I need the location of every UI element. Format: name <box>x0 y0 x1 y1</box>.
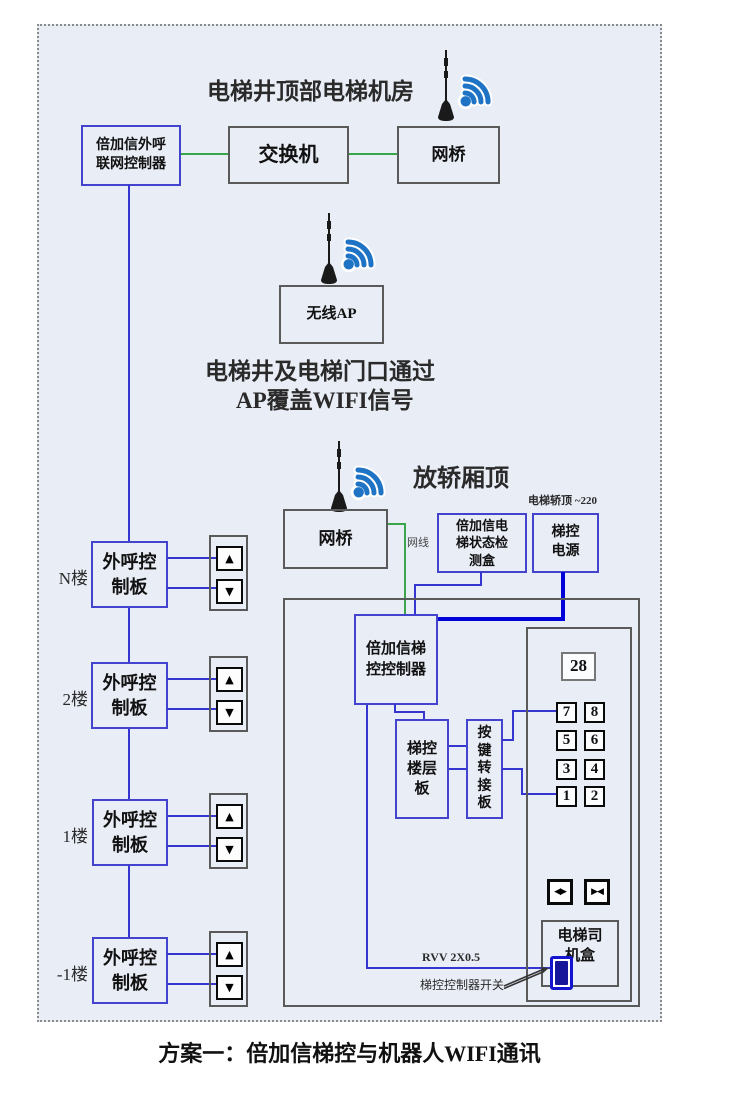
floor-button-2: 2 <box>584 786 605 807</box>
wire-switch-bridge <box>349 153 397 155</box>
down-arrow-icon: ▼ <box>225 585 233 598</box>
up-arrow-icon: ▲ <box>225 948 233 961</box>
diagram-caption: 方案一：倍加信梯控与机器人WIFI通讯 <box>37 1036 662 1068</box>
bridge-box-top: 网桥 <box>397 126 500 184</box>
machine-room-title: 电梯井顶部电梯机房 <box>207 72 414 106</box>
wire-ctrl-switch-down <box>366 705 368 969</box>
up-button: ▲ <box>216 804 243 829</box>
floor-button-6: 6 <box>584 730 605 751</box>
floor-button-7: 7 <box>556 702 577 723</box>
wifi-antenna-icon <box>314 207 380 287</box>
door-close-button: ▶◀ <box>584 879 610 905</box>
down-button: ▼ <box>216 700 243 725</box>
down-arrow-icon: ▼ <box>225 706 233 719</box>
down-arrow-icon: ▼ <box>225 981 233 994</box>
down-arrow-icon: ▼ <box>225 843 233 856</box>
up-arrow-icon: ▲ <box>225 810 233 823</box>
controller-switch-toggle <box>555 961 568 985</box>
wire-adapter-btn1-1 <box>502 768 523 770</box>
floor-board-box: 梯控 楼层 板 <box>395 719 449 819</box>
up-button: ▲ <box>216 546 243 571</box>
floor-label-minus1: -1楼 <box>22 960 88 985</box>
rvv-cable-label: RVV 2X0.5 <box>422 950 480 965</box>
controller-switch <box>550 956 573 990</box>
floor-button-5: 5 <box>556 730 577 751</box>
switch-pointer-label: 梯控控制器开关 <box>420 976 504 993</box>
diagram-page: 电梯井顶部电梯机房 倍加信外呼 联网控制器 交换机 网桥 <box>0 0 730 1096</box>
hall-call-board-1: 外呼控 制板 <box>92 799 168 866</box>
down-button: ▼ <box>216 837 243 862</box>
switch-box: 交换机 <box>228 126 349 184</box>
door-close-icon: ▶◀ <box>591 887 603 897</box>
bridge-box-roof: 网桥 <box>283 509 388 569</box>
switch-pointer-arrow <box>500 956 552 990</box>
floor-button-4: 4 <box>584 759 605 780</box>
ap-note-line2: AP覆盖WIFI信号 <box>236 381 414 415</box>
door-open-icon: ◀▶ <box>554 887 566 897</box>
elevator-power-box: 梯控 电源 <box>532 513 599 573</box>
key-adapter-box: 按 键 转 接 板 <box>466 719 503 819</box>
hall-call-board-2: 外呼控 制板 <box>91 662 168 729</box>
down-button: ▼ <box>216 579 243 604</box>
floor-label-2: 2楼 <box>30 685 88 710</box>
wire-riser-2 <box>128 607 130 663</box>
cable-label: 网线 <box>407 534 429 550</box>
floor-button-1: 1 <box>556 786 577 807</box>
status-detect-box: 倍加信电 梯状态检 测盒 <box>437 513 527 573</box>
up-arrow-icon: ▲ <box>225 552 233 565</box>
hall-call-board-n: 外呼控 制板 <box>91 541 168 608</box>
call-network-controller-box: 倍加信外呼 联网控制器 <box>81 125 181 186</box>
wire-ctrl-floorboard-3 <box>423 711 425 719</box>
wire-riser-3 <box>128 728 130 800</box>
floor-display: 28 <box>561 652 596 681</box>
door-open-button: ◀▶ <box>547 879 573 905</box>
floor-label-1: 1楼 <box>30 822 88 847</box>
floor-button-8: 8 <box>584 702 605 723</box>
up-button: ▲ <box>216 667 243 692</box>
hall-call-board-minus1: 外呼控 制板 <box>92 937 168 1004</box>
car-roof-title: 放轿厢顶 <box>413 458 509 493</box>
up-arrow-icon: ▲ <box>225 673 233 686</box>
wire-adapter-btn1-2 <box>521 768 523 795</box>
wire-board-adapter-1 <box>449 745 466 747</box>
floor-button-3: 3 <box>556 759 577 780</box>
wire-ctrl-floorboard-2 <box>394 711 425 713</box>
wire-riser-1 <box>128 185 130 542</box>
wifi-antenna-icon <box>324 435 390 515</box>
elevator-controller-box: 倍加信梯 控控制器 <box>354 614 438 705</box>
power-note: 电梯轿顶 ~220 <box>528 492 597 508</box>
wire-status-left <box>414 584 482 586</box>
down-button: ▼ <box>216 975 243 1000</box>
wifi-antenna-icon <box>431 44 497 124</box>
up-button: ▲ <box>216 942 243 967</box>
wire-riser-4 <box>128 865 130 938</box>
wire-adapter-btn7-2 <box>512 710 514 741</box>
wire-controller-switch <box>181 153 228 155</box>
floor-label-n: N楼 <box>30 564 88 589</box>
wire-board-adapter-2 <box>449 768 466 770</box>
wireless-ap-box: 无线AP <box>279 285 384 344</box>
